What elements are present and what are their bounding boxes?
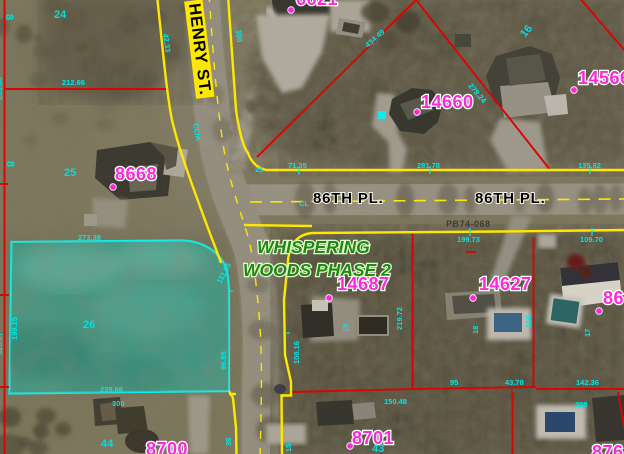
svg-text:8: 8: [4, 161, 16, 167]
svg-text:239.66: 239.66: [100, 385, 123, 394]
svg-text:273.38: 273.38: [78, 233, 101, 242]
svg-text:100.16: 100.16: [292, 341, 301, 364]
svg-text:86TH PL.: 86TH PL.: [313, 190, 384, 207]
svg-text:26: 26: [83, 319, 95, 331]
svg-text:19: 19: [341, 324, 350, 332]
svg-text:WHISPERING: WHISPERING: [257, 237, 370, 257]
svg-text:281.78: 281.78: [417, 161, 440, 170]
svg-text:24: 24: [54, 9, 67, 21]
svg-text:233.86: 233.86: [0, 77, 4, 100]
svg-text:95: 95: [450, 378, 458, 387]
svg-text:150.48: 150.48: [384, 397, 407, 406]
svg-text:71.35: 71.35: [288, 161, 307, 170]
svg-text:14687: 14687: [337, 274, 390, 294]
svg-text:100: 100: [234, 29, 244, 42]
svg-text:15: 15: [284, 444, 293, 452]
svg-text:86TH PL.: 86TH PL.: [475, 190, 546, 207]
svg-text:142.36: 142.36: [576, 378, 599, 387]
svg-text:8: 8: [3, 14, 15, 20]
svg-text:8700: 8700: [146, 439, 188, 454]
svg-text:300: 300: [112, 399, 125, 408]
svg-text:212.66: 212.66: [62, 78, 85, 87]
svg-text:86: 86: [603, 288, 624, 308]
svg-text:208: 208: [575, 400, 588, 409]
svg-text:14660: 14660: [421, 92, 474, 112]
svg-text:44: 44: [101, 438, 114, 450]
svg-text:17: 17: [583, 329, 592, 337]
svg-text:199.73: 199.73: [457, 235, 480, 244]
svg-text:219.72: 219.72: [395, 307, 404, 330]
svg-text:199.15: 199.15: [10, 317, 19, 340]
svg-text:PB74-068: PB74-068: [446, 219, 491, 229]
svg-text:8668: 8668: [115, 164, 157, 184]
svg-text:96.85: 96.85: [219, 351, 228, 370]
svg-text:25: 25: [64, 167, 76, 179]
svg-text:CL: CL: [299, 199, 309, 208]
svg-text:14627: 14627: [479, 274, 532, 294]
svg-text:210: 210: [524, 315, 533, 328]
svg-text:25: 25: [255, 165, 263, 174]
svg-text:109.70: 109.70: [580, 235, 603, 244]
svg-text:6621: 6621: [296, 0, 338, 9]
svg-text:14566: 14566: [578, 68, 624, 88]
svg-text:320.07: 320.07: [0, 332, 4, 355]
svg-text:876: 876: [592, 442, 624, 454]
svg-text:18: 18: [471, 326, 480, 334]
svg-text:35: 35: [224, 438, 233, 446]
svg-text:43.78: 43.78: [505, 378, 524, 387]
svg-text:43: 43: [372, 443, 384, 454]
